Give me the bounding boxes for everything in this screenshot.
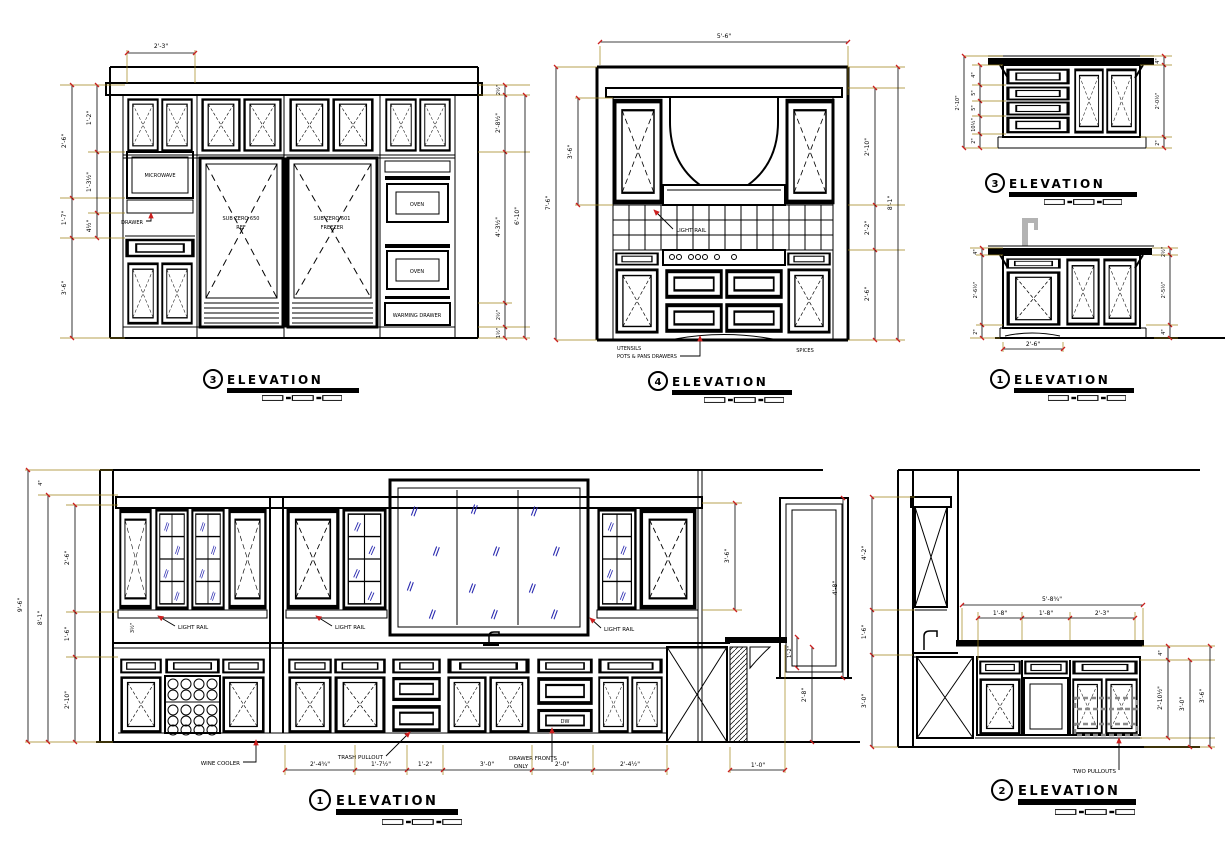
- freezer-label-2: FREEZER: [321, 225, 344, 231]
- left-dim-chains: 9'-6" 8'-1" 4" 2'-6" 1'-6" 2'-10": [17, 470, 75, 742]
- svg-text:4'-8": 4'-8": [832, 581, 839, 595]
- wine-rack: [165, 676, 220, 735]
- svg-text:2'-5½": 2'-5½": [1160, 282, 1167, 299]
- pots-pans-label: POTS & PANS DRAWERS: [617, 354, 677, 360]
- svg-text:1'-0": 1'-0": [751, 762, 765, 769]
- svg-text:1'-7": 1'-7": [61, 211, 68, 225]
- spices-label: SPICES: [796, 348, 814, 354]
- svg-text:2'-2": 2'-2": [864, 221, 871, 235]
- right-dim-chain: 2½" 2'-8½" 4'-3½" 2½" 1½" 6'-10": [495, 85, 525, 338]
- bar-end: [667, 637, 787, 742]
- svg-text:1'-8": 1'-8": [1039, 610, 1053, 617]
- elevation-1-small: 2'-6" 4" 2'-6½" 2" 2½" 2'-5½" 4" 1 ELEVA…: [970, 218, 1225, 400]
- svg-text:4": 4": [973, 249, 979, 254]
- bottom-dim-chain: 2'-4¾" 1'-7½" 1'-2" 3'-0" 2'-0" 2'-4½": [285, 761, 667, 770]
- title-text: ELEVATION: [1014, 373, 1110, 387]
- svg-text:7'-6": 7'-6": [545, 196, 552, 210]
- svg-text:4": 4": [1158, 650, 1164, 655]
- oven-stack: OVEN OVEN WARMING DRAWER: [385, 161, 450, 325]
- tile-backsplash: [613, 205, 833, 250]
- scale-bar: [262, 396, 342, 401]
- warming-drawer-label: WARMING DRAWER: [393, 313, 442, 319]
- svg-text:1'-3½": 1'-3½": [86, 172, 93, 192]
- svg-text:3'-0": 3'-0": [480, 761, 494, 768]
- svg-text:5": 5": [971, 105, 977, 110]
- oven-label-1: OVEN: [410, 202, 424, 208]
- title-elevation-1-small: 1 ELEVATION: [991, 370, 1134, 400]
- drawing-sheet: MICROWAVE DRAWER SUB ZERO 650 REF SUB ZE…: [0, 0, 1229, 842]
- svg-text:2½": 2½": [495, 310, 502, 320]
- svg-text:4": 4": [38, 480, 44, 485]
- svg-text:2½": 2½": [495, 85, 502, 95]
- svg-text:2'-6": 2'-6": [64, 551, 71, 565]
- base-cabinets-right: [599, 660, 661, 732]
- dw-label: DW: [561, 719, 570, 725]
- svg-text:3'-6": 3'-6": [1199, 689, 1206, 703]
- svg-text:6'-10": 6'-10": [514, 207, 521, 225]
- title-number: 3: [210, 375, 217, 386]
- svg-text:9'-6": 9'-6": [17, 598, 24, 612]
- two-pullouts-label: TWO PULLOUTS: [1072, 769, 1117, 775]
- elevation-3-main: MICROWAVE DRAWER SUB ZERO 650 REF SUB ZE…: [60, 43, 530, 400]
- elevation-4: LIGHT RAIL UTENSILS POTS & PANS DRAWERS …: [545, 33, 905, 402]
- svg-text:2'-6": 2'-6": [864, 287, 871, 301]
- elevation-2: TWO PULLOUTS 5'-8¾" 1'-8" 1'-8" 2'-3" 4'…: [861, 470, 1215, 814]
- elevation-1-main: LIGHT RAIL LIGHT RAIL LIGHT RAIL 3½": [17, 470, 860, 824]
- svg-text:1'-2": 1'-2": [418, 761, 432, 768]
- svg-text:4": 4": [1155, 58, 1161, 63]
- dishwasher: DW: [539, 660, 592, 731]
- svg-text:2'-0½": 2'-0½": [1154, 93, 1161, 110]
- dim-top: 5'-6": [717, 33, 731, 40]
- upper-glass-cabinets: [615, 101, 833, 202]
- svg-text:2'-10": 2'-10": [955, 95, 961, 110]
- top-dim-chain: 1'-8" 1'-8" 2'-3": [978, 610, 1135, 618]
- drawer-leader: [146, 213, 151, 221]
- svg-text:5": 5": [971, 90, 977, 95]
- title-text: ELEVATION: [1009, 177, 1105, 191]
- microwave-label: MICROWAVE: [144, 173, 175, 179]
- svg-text:8'-1": 8'-1": [887, 196, 894, 210]
- svg-text:2'-10": 2'-10": [64, 691, 71, 709]
- svg-text:3'-0": 3'-0": [1179, 697, 1186, 711]
- scale-bar: [1048, 396, 1126, 401]
- svg-text:4": 4": [1161, 329, 1167, 334]
- island-drawer-stack: [1008, 70, 1068, 133]
- dim-light-rail: 3½": [129, 623, 136, 633]
- svg-text:2": 2": [971, 138, 977, 143]
- wine-cooler-label: WINE COOLER: [201, 761, 240, 767]
- title-text: ELEVATION: [336, 794, 438, 809]
- elevation-3-small: 4" 5" 5" 10½" 2" 2'-10" 4" 2'-0½" 2" 3 E…: [955, 56, 1172, 204]
- window: [390, 480, 588, 635]
- title-number: 2: [999, 786, 1006, 797]
- sub-zero-refrigerator: SUB ZERO 650 REF: [200, 158, 283, 327]
- svg-text:1'-8": 1'-8": [993, 610, 1007, 617]
- svg-text:2'-0": 2'-0": [555, 761, 569, 768]
- dim-bottom: 2'-6": [1026, 341, 1040, 348]
- svg-text:4'-3½": 4'-3½": [495, 217, 502, 237]
- svg-text:4'-2": 4'-2": [861, 546, 868, 560]
- title-text: ELEVATION: [227, 373, 323, 387]
- svg-text:1'-2": 1'-2": [787, 646, 793, 658]
- right-dim-chain: 4" 2'-0½" 2": [1154, 56, 1164, 148]
- upper-cabinets-right: [597, 510, 698, 618]
- left-dim-chain: 4" 2'-6½" 2": [972, 248, 982, 338]
- drawer-fronts-label-2: ONLY: [514, 764, 529, 770]
- scale-bar: [1055, 810, 1135, 815]
- left-dim-chain: 4'-2" 1'-6" 3'-0": [861, 497, 872, 747]
- svg-text:2'-4¾": 2'-4¾": [310, 761, 330, 768]
- right-dim-chain: 4" 2'-10½" 3'-0" 3'-6": [1157, 646, 1210, 747]
- island-glass-doors: [1075, 70, 1136, 132]
- base-cabinets: [975, 657, 1142, 738]
- svg-text:2'-10": 2'-10": [864, 138, 871, 156]
- light-rail-label-3: LIGHT RAIL: [604, 627, 635, 633]
- sink-faucet-side: [913, 631, 958, 657]
- svg-text:1'-2": 1'-2": [86, 111, 93, 125]
- svg-text:2'-4½": 2'-4½": [620, 761, 640, 768]
- right-dim-chain: 2½" 2'-5½" 4": [1160, 247, 1170, 338]
- sub-zero-freezer: SUB ZERO 601 FREEZER: [288, 158, 377, 327]
- oven-label-2: OVEN: [410, 269, 424, 275]
- svg-text:2'-8": 2'-8": [801, 688, 808, 702]
- upper-cabinet-doors: [128, 100, 449, 151]
- island-front-cabinets: [1008, 259, 1136, 324]
- title-elevation-3: 3 ELEVATION: [204, 370, 359, 400]
- svg-text:1'-7½": 1'-7½": [371, 761, 391, 768]
- svg-text:3'-6": 3'-6": [567, 145, 574, 159]
- title-elevation-3-small: 3 ELEVATION: [986, 174, 1137, 204]
- upper-cabinets-middle: [286, 510, 387, 618]
- microwave: MICROWAVE: [127, 152, 193, 198]
- title-elevation-4: 4 ELEVATION: [649, 372, 792, 402]
- svg-text:3'-6": 3'-6": [724, 549, 731, 563]
- title-elevation-2: 2 ELEVATION: [992, 780, 1136, 814]
- faucet: [1022, 218, 1038, 246]
- ref-label-2: REF: [236, 225, 246, 231]
- svg-text:2'-6": 2'-6": [61, 134, 68, 148]
- base-cabinets-left: [121, 660, 263, 735]
- svg-text:1'-6": 1'-6": [64, 627, 71, 641]
- drawer-label: DRAWER: [121, 220, 143, 226]
- svg-text:2'-8½": 2'-8½": [495, 113, 502, 133]
- drawer-fronts-label-1: DRAWER FRONTS: [509, 756, 558, 762]
- base-cabinets-middle: [289, 660, 528, 732]
- svg-text:1½": 1½": [495, 328, 502, 338]
- svg-text:4½": 4½": [86, 220, 93, 233]
- light-rail-label-2: LIGHT RAIL: [335, 625, 366, 631]
- left-dim-chain: 2'-6" 1'-7" 3'-6" 1'-2" 1'-3½" 4½": [61, 85, 97, 338]
- dim-top: 2'-3": [154, 43, 168, 50]
- title-text: ELEVATION: [1018, 784, 1120, 799]
- svg-text:2½": 2½": [1160, 247, 1167, 257]
- svg-text:2'-3": 2'-3": [1095, 610, 1109, 617]
- svg-text:2'-10½": 2'-10½": [1157, 686, 1164, 710]
- svg-text:3'-0": 3'-0": [861, 694, 868, 708]
- title-elevation-1-main: 1 ELEVATION: [310, 790, 462, 824]
- dim-top: 5'-8¾": [1042, 596, 1062, 603]
- upper-cabinets-left: [118, 510, 267, 618]
- kitchen-elevations-svg: MICROWAVE DRAWER SUB ZERO 650 REF SUB ZE…: [0, 0, 1229, 842]
- svg-text:3'-6": 3'-6": [61, 281, 68, 295]
- ref-label-1: SUB ZERO 650: [223, 216, 260, 222]
- scale-bar: [704, 398, 784, 403]
- svg-text:1'-6": 1'-6": [861, 625, 868, 639]
- left-base-cabinet: [127, 240, 193, 323]
- svg-text:2": 2": [973, 329, 979, 334]
- light-rail-label: LIGHT RAIL: [676, 228, 707, 234]
- title-number: 1: [997, 375, 1004, 386]
- svg-text:2": 2": [1155, 140, 1161, 145]
- svg-text:10½": 10½": [970, 118, 977, 132]
- utensils-label: UTENSILS: [617, 346, 641, 352]
- end-panel: [917, 657, 973, 738]
- scale-bar: [382, 820, 462, 825]
- svg-text:8'-1": 8'-1": [37, 611, 44, 625]
- scale-bar: [1044, 200, 1122, 205]
- wall-cabinet-side: [911, 497, 951, 610]
- svg-text:2'-6½": 2'-6½": [972, 282, 979, 299]
- title-number: 3: [992, 179, 999, 190]
- hood: [663, 97, 785, 205]
- small-drawer: [127, 200, 193, 213]
- title-number: 1: [317, 796, 324, 807]
- svg-text:4": 4": [971, 72, 977, 77]
- freezer-label-1: SUB ZERO 601: [314, 216, 351, 222]
- title-number: 4: [655, 377, 662, 388]
- range: [663, 250, 785, 339]
- title-text: ELEVATION: [672, 375, 768, 389]
- light-rail-label-1: LIGHT RAIL: [178, 625, 209, 631]
